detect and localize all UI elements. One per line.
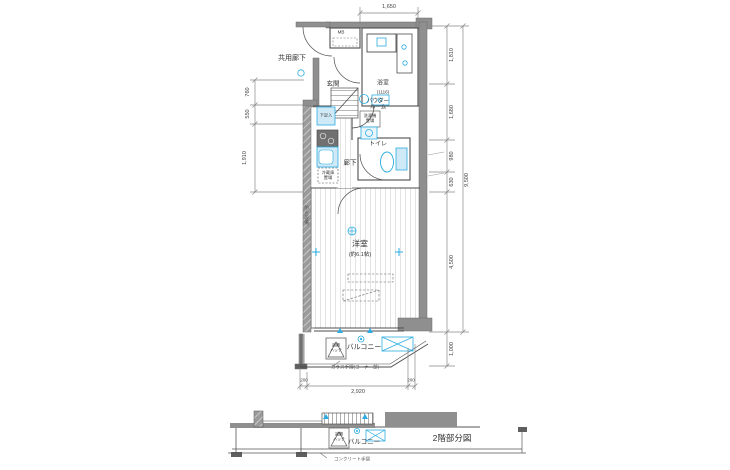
dim-bottom-200-right: 200 [407,377,415,382]
partial-plan-caption: 2階部分図 [433,434,472,444]
escape-hatch-label: 避難 ハッチ [330,343,342,352]
bathroom-size-label: (1116) [377,89,389,94]
powder-room-label: パウダー ルーム [367,99,389,112]
mb-label: MB [338,29,345,34]
dim-left-550: 550 [245,109,251,118]
bathroom-label: 浴室 [377,81,389,88]
glass-rail-note: ガラス手摺(コーナー部) [331,364,379,369]
dim-bottom-200-left: 200 [300,377,308,382]
floorplan-canvas: 共用廊下 MB 浴室 (1116) 玄関 下足入 パウダー ルーム 洗濯機 置場… [0,0,730,470]
dim-left-760: 760 [245,87,251,96]
toilet-fixture [381,148,408,172]
fridge-label: 冷蔵庫 置場 [322,171,335,181]
main-room-size-label: (約6.1帖) [349,252,371,258]
entrance-label: 玄関 [327,80,340,87]
shoe-box-label: 下足入 [320,114,333,119]
dim-right-1810: 1,810 [449,48,455,62]
escape-hatch-2f-label: 避難 ハッチ [333,432,345,441]
dim-top-1650: 1,650 [382,4,396,10]
hallway-label: 廊下 [344,159,357,166]
dim-right-980: 980 [449,151,455,160]
dim-right-total-9500: 9,500 [464,173,470,187]
concrete-rail-note: コンクリート手摺 [334,456,370,461]
dim-right-4500: 4,500 [449,255,455,269]
dim-right-1000: 1,000 [449,342,455,356]
dim-bottom-2920: 2,920 [351,389,365,395]
fire-wall-label: 防火設備 [304,205,309,225]
balcony-label: バルコニー [347,344,382,352]
dim-right-1680: 1,680 [449,105,455,119]
dim-right-630: 630 [449,177,455,186]
main-room-label: 洋室 [352,239,368,248]
balcony-2f-label: バルコニー [348,438,380,445]
toilet-label: トイレ [369,142,387,149]
partial-plan-2f [228,411,527,458]
common-corridor-label: 共用廊下 [278,55,306,63]
leader-lines [428,152,444,176]
washer-label: 洗濯機 置場 [364,114,377,124]
floorplan-drawing [0,0,730,470]
dim-left-1910: 1,910 [242,151,248,165]
